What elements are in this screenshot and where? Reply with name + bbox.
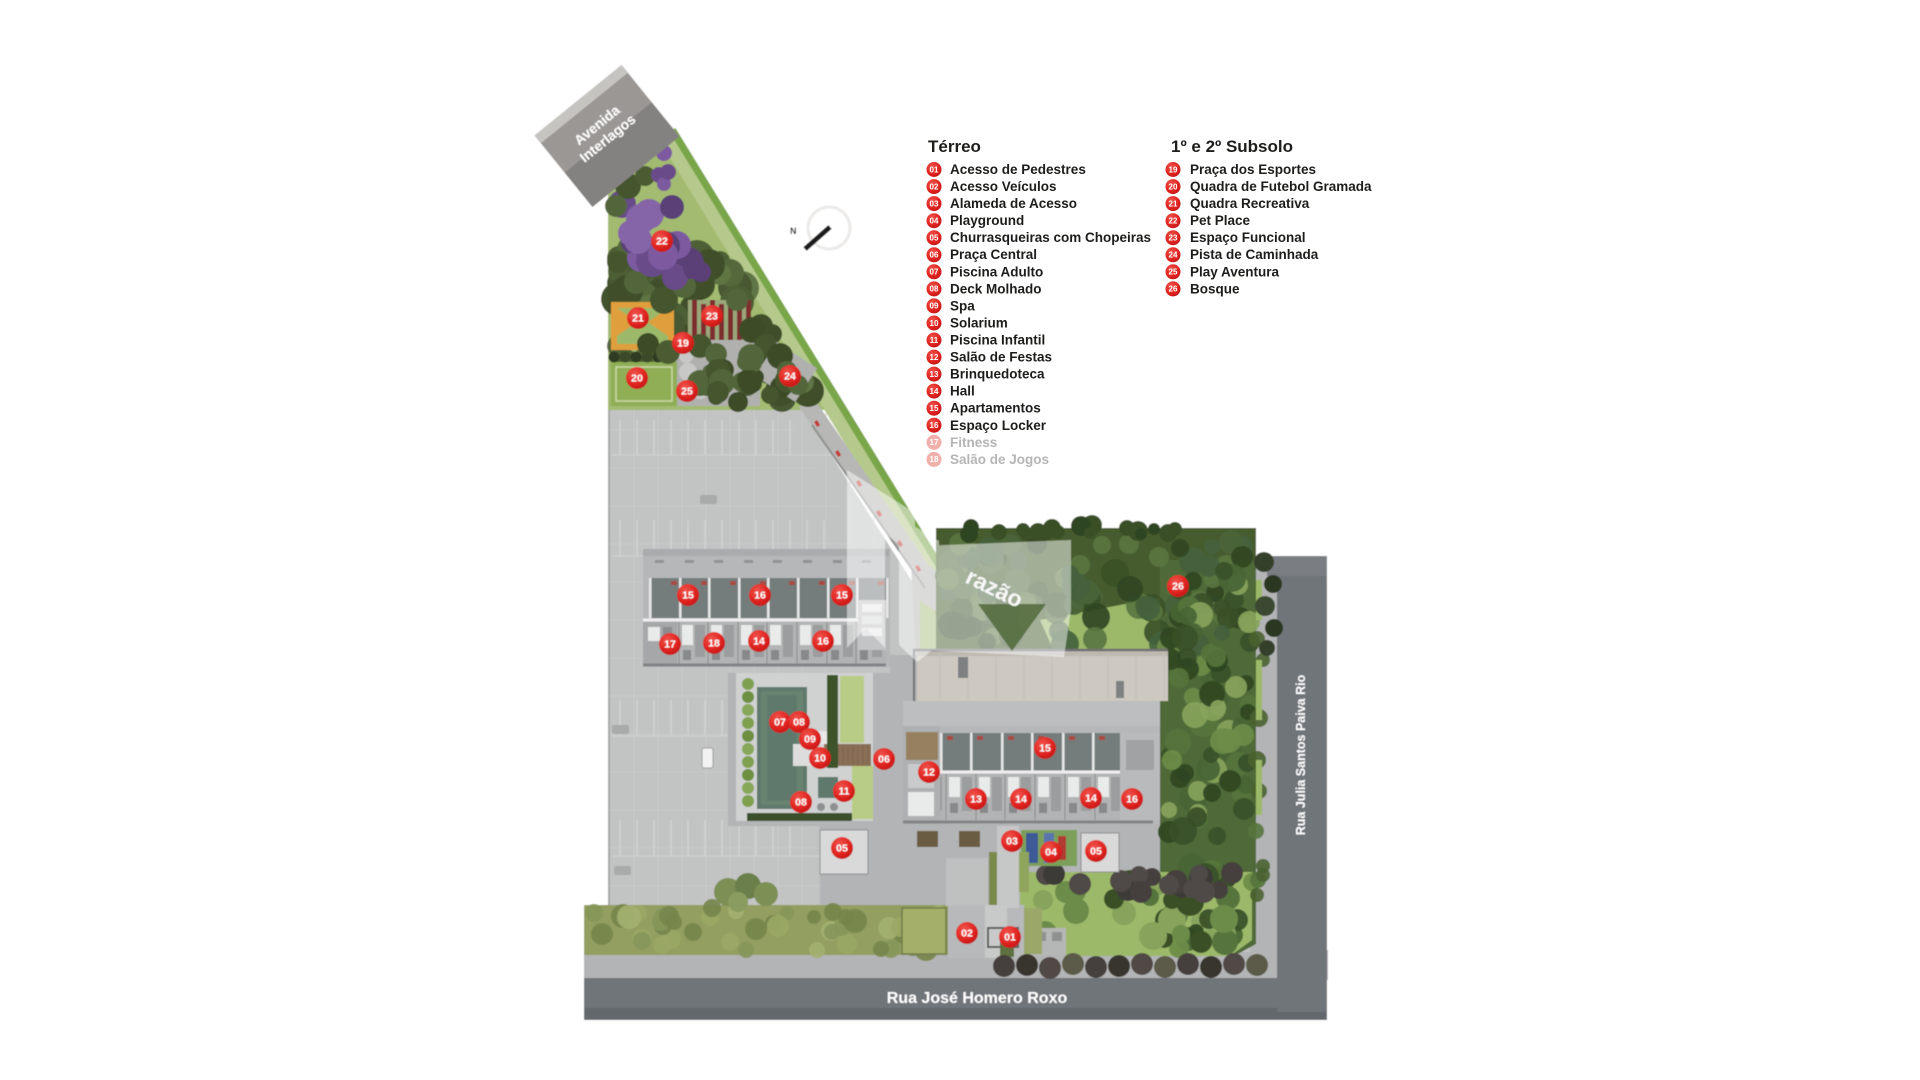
svg-text:Spa: Spa: [950, 298, 975, 313]
svg-text:21: 21: [632, 313, 644, 325]
svg-text:Quadra Recreativa: Quadra Recreativa: [1190, 196, 1310, 211]
svg-text:10: 10: [814, 753, 826, 765]
svg-text:01: 01: [930, 165, 939, 174]
svg-text:24: 24: [1169, 251, 1178, 260]
svg-text:18: 18: [930, 455, 939, 464]
svg-text:07: 07: [930, 268, 939, 277]
svg-text:14: 14: [930, 387, 939, 396]
svg-text:04: 04: [930, 217, 939, 226]
svg-text:Brinquedoteca: Brinquedoteca: [950, 367, 1045, 382]
svg-text:14: 14: [1015, 794, 1027, 806]
svg-text:08: 08: [793, 717, 805, 729]
svg-text:Salão de Jogos: Salão de Jogos: [950, 452, 1049, 467]
svg-text:Solarium: Solarium: [950, 316, 1008, 331]
svg-text:08: 08: [795, 797, 807, 809]
svg-text:Térreo: Térreo: [928, 137, 981, 156]
svg-text:Piscina Adulto: Piscina Adulto: [950, 264, 1043, 279]
svg-text:22: 22: [1169, 217, 1178, 226]
svg-text:13: 13: [970, 794, 982, 806]
svg-text:11: 11: [838, 786, 849, 798]
svg-text:Rua José Homero Roxo: Rua José Homero Roxo: [887, 990, 1068, 1007]
svg-text:Apartamentos: Apartamentos: [950, 401, 1041, 416]
svg-text:12: 12: [930, 353, 939, 362]
svg-text:19: 19: [677, 338, 689, 350]
svg-text:15: 15: [930, 404, 939, 413]
svg-text:Rua Julia Santos Paiva Rio: Rua Julia Santos Paiva Rio: [1294, 674, 1308, 835]
svg-text:14: 14: [1085, 793, 1097, 805]
svg-text:16: 16: [817, 636, 829, 648]
svg-text:23: 23: [1169, 234, 1178, 243]
svg-text:15: 15: [1039, 743, 1051, 755]
svg-text:Acesso de Pedestres: Acesso de Pedestres: [950, 162, 1086, 177]
svg-text:16: 16: [1126, 794, 1138, 806]
svg-text:21: 21: [1169, 199, 1178, 208]
svg-text:Espaço Funcional: Espaço Funcional: [1190, 230, 1306, 245]
svg-text:25: 25: [1169, 268, 1178, 277]
svg-text:14: 14: [753, 636, 765, 648]
svg-text:06: 06: [878, 754, 890, 766]
svg-text:Churrasqueiras com Chopeiras: Churrasqueiras com Chopeiras: [950, 230, 1151, 245]
svg-text:Playground: Playground: [950, 213, 1024, 228]
svg-text:Salão de Festas: Salão de Festas: [950, 350, 1052, 365]
svg-text:10: 10: [930, 319, 939, 328]
svg-text:Fitness: Fitness: [950, 435, 997, 450]
svg-text:1º e 2º Subsolo: 1º e 2º Subsolo: [1171, 137, 1293, 156]
svg-text:12: 12: [923, 767, 935, 779]
svg-text:26: 26: [1169, 285, 1178, 294]
svg-text:18: 18: [708, 638, 720, 650]
svg-text:24: 24: [784, 371, 796, 383]
svg-text:Alameda de Acesso: Alameda de Acesso: [950, 196, 1077, 211]
svg-text:09: 09: [804, 734, 816, 746]
svg-text:Quadra de Futebol Gramada: Quadra de Futebol Gramada: [1190, 179, 1372, 194]
svg-text:02: 02: [961, 928, 973, 940]
svg-text:Piscina Infantil: Piscina Infantil: [950, 333, 1045, 348]
svg-text:20: 20: [1169, 182, 1178, 191]
svg-text:05: 05: [836, 843, 848, 855]
svg-text:15: 15: [836, 590, 848, 602]
svg-text:01: 01: [1004, 932, 1016, 944]
svg-text:03: 03: [930, 199, 939, 208]
svg-text:17: 17: [930, 438, 939, 447]
svg-text:16: 16: [930, 421, 939, 430]
svg-text:Praça Central: Praça Central: [950, 247, 1037, 262]
svg-text:23: 23: [706, 311, 718, 323]
svg-text:25: 25: [681, 386, 693, 398]
svg-text:02: 02: [930, 182, 939, 191]
svg-text:05: 05: [1090, 846, 1102, 858]
svg-text:17: 17: [664, 639, 676, 651]
svg-text:20: 20: [631, 373, 643, 385]
svg-text:13: 13: [930, 370, 939, 379]
svg-text:Acesso Veículos: Acesso Veículos: [950, 179, 1057, 194]
svg-text:Deck Molhado: Deck Molhado: [950, 281, 1042, 296]
svg-text:07: 07: [774, 717, 786, 729]
svg-text:Play Aventura: Play Aventura: [1190, 264, 1280, 279]
svg-text:Espaço Locker: Espaço Locker: [950, 418, 1047, 433]
svg-text:26: 26: [1172, 581, 1184, 593]
svg-text:11: 11: [930, 336, 939, 345]
svg-text:03: 03: [1006, 836, 1018, 848]
svg-text:N: N: [790, 226, 797, 236]
svg-text:22: 22: [656, 236, 668, 248]
svg-text:05: 05: [930, 234, 939, 243]
svg-text:04: 04: [1045, 847, 1057, 859]
svg-text:Pet Place: Pet Place: [1190, 213, 1251, 228]
svg-text:19: 19: [1169, 165, 1178, 174]
svg-text:06: 06: [930, 251, 939, 260]
svg-text:09: 09: [930, 302, 939, 311]
svg-text:16: 16: [754, 590, 766, 602]
svg-text:Pista de Caminhada: Pista de Caminhada: [1190, 247, 1319, 262]
svg-text:15: 15: [682, 590, 694, 602]
svg-text:08: 08: [930, 285, 939, 294]
svg-text:Hall: Hall: [950, 384, 975, 399]
svg-text:Bosque: Bosque: [1190, 281, 1240, 296]
svg-text:Praça dos Esportes: Praça dos Esportes: [1190, 162, 1316, 177]
